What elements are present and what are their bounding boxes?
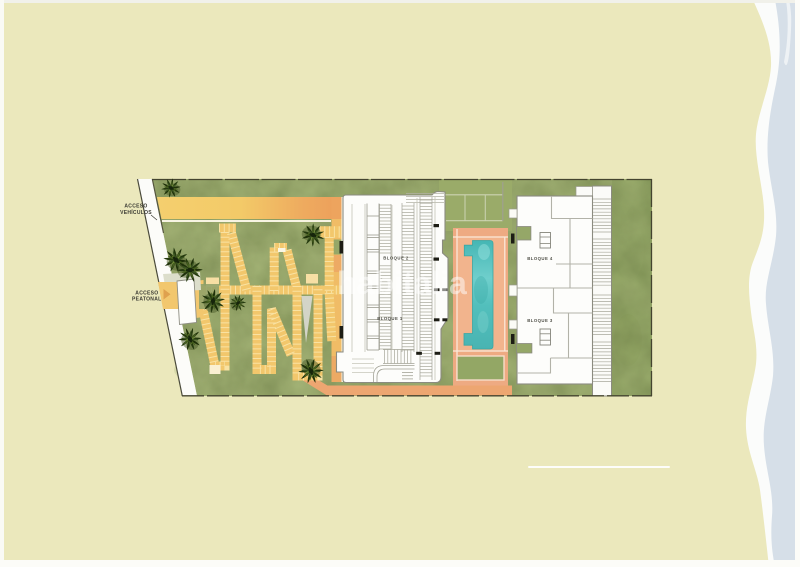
svg-text:PEATONAL: PEATONAL xyxy=(132,296,161,302)
svg-text:BLOQUE 4: BLOQUE 4 xyxy=(527,256,553,261)
svg-text:habitalia: habitalia xyxy=(337,265,467,301)
svg-text:ACCESO: ACCESO xyxy=(124,204,147,210)
svg-text:BLOQUE 3: BLOQUE 3 xyxy=(527,318,553,323)
svg-text:BLOQUE 1: BLOQUE 1 xyxy=(377,316,403,321)
svg-text:VEHÍCULOS: VEHÍCULOS xyxy=(120,208,152,216)
svg-text:BLOQUE 2: BLOQUE 2 xyxy=(383,256,409,261)
